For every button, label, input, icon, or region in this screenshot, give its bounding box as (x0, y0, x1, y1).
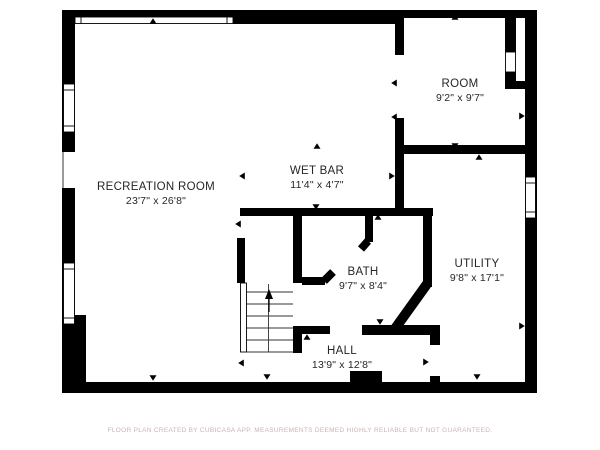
wall-room-left-lower (395, 118, 404, 216)
stair-up-arrow-icon (265, 289, 273, 312)
door-leaf-bath-upper-tip (361, 241, 368, 249)
room-dimensions: 23'7" x 26'8" (97, 194, 215, 208)
room-dimensions: 9'2" x 9'7" (436, 91, 484, 105)
room-name: RECREATION ROOM (97, 180, 215, 194)
wall-room-bottom (398, 145, 527, 154)
room-name: UTILITY (450, 257, 504, 271)
marker-right-icon (423, 359, 429, 366)
room-label-bath: BATH 9'7" x 8'4" (339, 265, 387, 293)
stair-railing (241, 283, 247, 352)
room-name: ROOM (436, 77, 484, 91)
room-dimensions: 11'4" x 4'7" (290, 178, 344, 192)
marker-right-icon (519, 113, 525, 120)
room-dimensions: 9'8" x 17'1" (450, 271, 504, 285)
wall-stair-left (237, 238, 245, 283)
wall-top-thick (233, 17, 400, 24)
room-name: BATH (339, 265, 387, 279)
watermark-text: FLOOR PLAN CREATED BY CUBICASA APP. MEAS… (0, 427, 600, 434)
window-left-wall-lower (64, 263, 75, 324)
wall-top-right-stub (505, 18, 516, 52)
door-leaf-bath-upper (365, 216, 373, 242)
door-leaf-bath-lower-tip (324, 272, 333, 281)
room-name: HALL (312, 344, 372, 358)
room-label-recreation-room: RECREATION ROOM 23'7" x 26'8" (97, 180, 215, 208)
wall-bath-top (240, 208, 433, 216)
marker-left-icon (391, 114, 397, 121)
chimney-nub (350, 371, 382, 382)
marker-left-icon (239, 173, 245, 180)
wall-left-nub (75, 315, 86, 382)
wall-room-left-upper (395, 10, 404, 55)
room-label-room: ROOM 9'2" x 9'7" (436, 77, 484, 105)
wall-utility-divider-upper (430, 335, 440, 345)
marker-up-icon (304, 334, 311, 340)
wall-left (62, 10, 75, 382)
wall-nook-horizontal (505, 81, 528, 89)
room-label-utility: UTILITY 9'8" x 17'1" (450, 257, 504, 285)
wall-bath-left (293, 216, 302, 283)
room-label-wet-bar: WET BAR 11'4" x 4'7" (290, 164, 344, 192)
wall-utility-divider-lower (430, 376, 440, 384)
room-label-hall: HALL 13'9" x 12'8" (312, 344, 372, 372)
marker-right-icon (519, 323, 525, 330)
wall-bath-right (423, 216, 432, 287)
marker-left-icon (391, 80, 397, 87)
marker-down-icon (150, 375, 157, 381)
marker-down-icon (474, 374, 481, 380)
marker-up-icon (476, 154, 483, 160)
marker-left-icon (235, 221, 241, 228)
marker-down-icon (377, 319, 384, 325)
marker-right-icon (389, 173, 395, 180)
floor-plan-drawing (0, 0, 600, 450)
room-dimensions: 13'9" x 12'8" (312, 358, 372, 372)
opening-left-wall (62, 152, 75, 188)
window-nook (506, 52, 516, 72)
wall-bottom (62, 382, 537, 393)
wall-hall-left (293, 326, 302, 353)
marker-down-icon (264, 374, 271, 380)
marker-up-icon (314, 143, 321, 149)
room-dimensions: 9'7" x 8'4" (339, 279, 387, 293)
staircase (241, 283, 294, 352)
wall-bath-diagonal (394, 284, 427, 330)
marker-left-icon (238, 360, 244, 367)
floor-plan-canvas: RECREATION ROOM 23'7" x 26'8" WET BAR 11… (0, 0, 600, 450)
room-name: WET BAR (290, 164, 344, 178)
window-left-wall-upper (64, 84, 75, 132)
